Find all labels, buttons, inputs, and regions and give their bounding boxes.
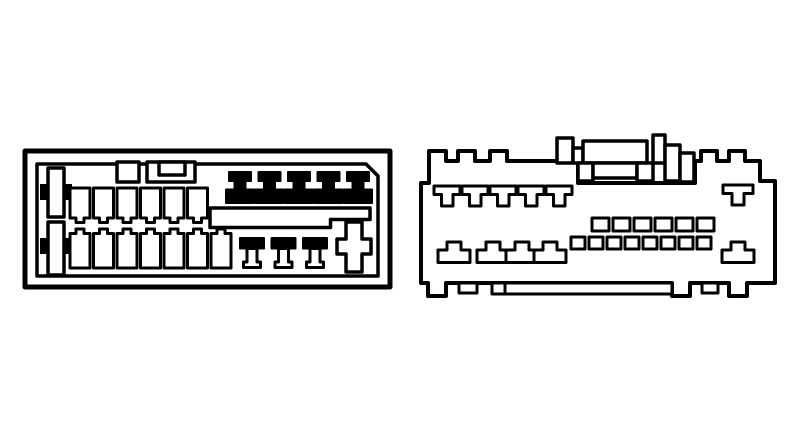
polarizing-key-post-bottom — [48, 222, 64, 275]
cavity-mid-row-3 — [634, 218, 651, 231]
keyway-bracket-inner — [159, 162, 185, 175]
cavity-mid-row-4 — [655, 218, 672, 231]
cavity-low-row-4 — [625, 237, 639, 249]
latch-post-right — [653, 135, 665, 163]
pin-top-row-3 — [117, 188, 137, 223]
t-pin-cap-1 — [240, 238, 264, 249]
pin-bottom-row-4 — [141, 229, 161, 268]
right-connector — [421, 135, 775, 296]
bottom-lug-left — [459, 283, 477, 293]
latch-post-left — [557, 138, 573, 163]
latch-foot-right — [637, 163, 653, 181]
pin-top-row-2 — [94, 188, 114, 223]
cavity-mid-row-1 — [592, 218, 609, 231]
pin-bottom-row-2 — [94, 229, 114, 268]
diagram-stage — [0, 0, 800, 425]
latch-foot-left — [578, 163, 593, 181]
pin-bottom-row-5 — [164, 229, 184, 268]
latch-column-a — [665, 145, 680, 181]
pin-bottom-row-3 — [117, 229, 137, 268]
connector-diagram — [0, 0, 800, 425]
t-pin-stem-2 — [275, 249, 292, 268]
pin-top-row-1 — [70, 188, 90, 223]
cavity-low-row-6 — [661, 237, 675, 249]
left-connector — [25, 151, 390, 287]
pin-top-row-4 — [141, 188, 161, 223]
pin-bottom-row-1 — [70, 229, 90, 268]
bottom-rail — [492, 283, 672, 294]
cavity-low-row-1 — [571, 237, 585, 249]
latch-column-b — [680, 153, 694, 182]
latch-tongue — [593, 163, 637, 178]
latch-bridge — [583, 141, 647, 163]
pin-top-row-6 — [188, 188, 208, 223]
bottom-lug-right — [702, 283, 718, 293]
cavity-mid-row-5 — [676, 218, 693, 231]
keyway-block — [117, 162, 139, 182]
cavity-low-row-2 — [589, 237, 603, 249]
pin-bottom-row-7 — [211, 229, 231, 268]
cavity-mid-row-2 — [613, 218, 630, 231]
t-pin-stem-3 — [307, 249, 324, 268]
pin-bottom-row-6 — [188, 229, 208, 268]
cavity-low-row-3 — [607, 237, 621, 249]
cavity-low-row-5 — [643, 237, 657, 249]
pin-top-row-5 — [164, 188, 184, 223]
cavity-low-row-8 — [697, 237, 711, 249]
t-pin-stem-1 — [244, 249, 261, 268]
cavity-mid-row-6 — [697, 218, 714, 231]
t-pin-cap-2 — [272, 238, 296, 249]
polarizing-key-post-top — [48, 168, 64, 217]
t-pin-cap-3 — [303, 238, 327, 249]
cavity-low-row-7 — [679, 237, 693, 249]
